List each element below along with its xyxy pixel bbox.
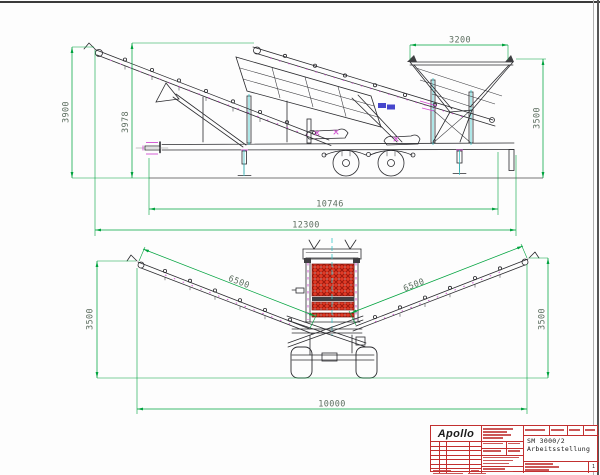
dim-label-conveyor-right: 6500 — [402, 277, 426, 294]
dim-label-height-discharge: 3900 — [62, 101, 72, 123]
dim-label-width-overall: 10000 — [318, 400, 346, 410]
dim-label-height-right: 3500 — [533, 107, 543, 129]
screen-box — [236, 57, 402, 142]
footer-note-stub — [433, 473, 463, 475]
title-block: Apollo SM 3000/2 Arbeitsstellung 1 — [430, 425, 598, 472]
rear-view: 3500 3500 6500 6500 10000 — [86, 238, 549, 414]
drawing-sheet: 3200 3900 3978 3500 10746 12300 — [0, 0, 600, 475]
sheet-number: 1 — [588, 461, 599, 473]
drawing-model: SM 3000/2 — [527, 437, 565, 445]
rear-right-conveyor — [353, 252, 539, 331]
feed-conveyor — [253, 47, 495, 126]
axle-wheels — [322, 150, 415, 176]
dim-label-length-chassis: 10746 — [316, 200, 344, 210]
rear-left-conveyor — [127, 255, 313, 334]
footer-note-stub2 — [468, 473, 486, 475]
dim-label-rear-height-right: 3500 — [538, 308, 548, 330]
company-logo: Apollo — [431, 426, 481, 441]
post-centerlines — [244, 78, 471, 176]
screen-mesh-middle — [312, 302, 354, 310]
screen-mesh-lower — [312, 313, 354, 317]
engineering-drawing: 3200 3900 3978 3500 10746 12300 — [0, 0, 600, 475]
dim-label-length-overall: 12300 — [292, 221, 320, 231]
dim-label-conveyor-left: 6500 — [227, 274, 251, 291]
screen-mesh-upper — [312, 264, 354, 296]
drawing-title: SM 3000/2 Arbeitsstellung — [527, 437, 597, 453]
chassis — [136, 142, 514, 176]
dim-label-rear-height-left: 3500 — [86, 308, 96, 330]
rear-wheel-right — [356, 347, 377, 378]
side-view: 3200 3900 3978 3500 10746 12300 — [62, 36, 547, 237]
rear-wheel-left — [291, 347, 312, 378]
dim-label-hopper-width: 3200 — [449, 36, 471, 46]
dim-label-height-feed: 3978 — [121, 111, 131, 133]
drawing-subtitle: Arbeitsstellung — [527, 445, 590, 453]
